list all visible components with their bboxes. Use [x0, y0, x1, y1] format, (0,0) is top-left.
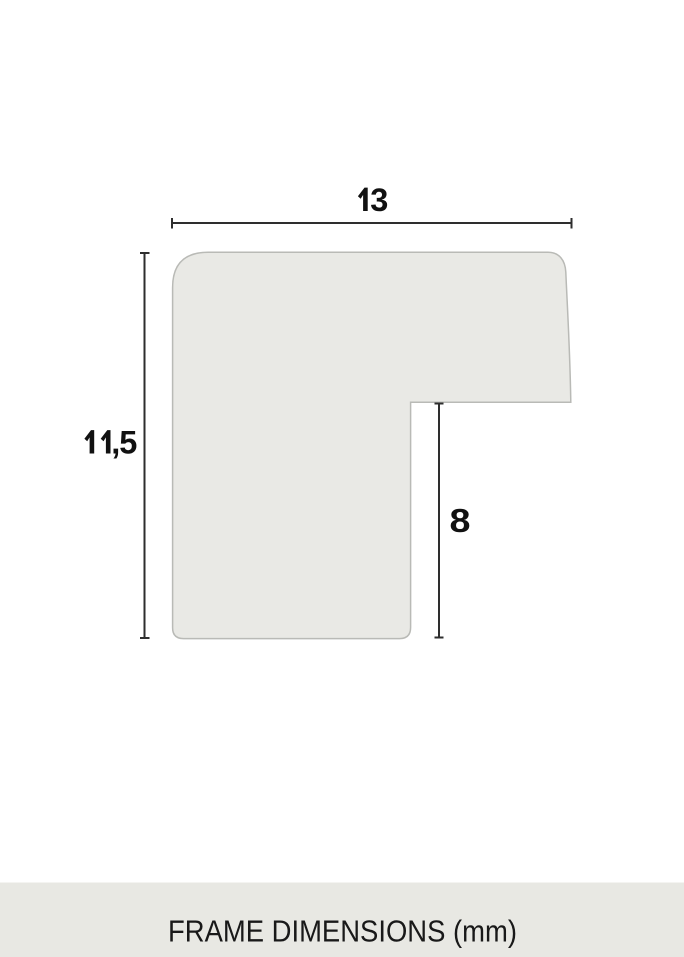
svg-text:5: 5 — [119, 425, 137, 461]
svg-text:8: 8 — [450, 502, 471, 540]
svg-text:FRAME DIMENSIONS (mm): FRAME DIMENSIONS (mm) — [168, 914, 517, 949]
svg-text:3: 3 — [370, 182, 388, 218]
